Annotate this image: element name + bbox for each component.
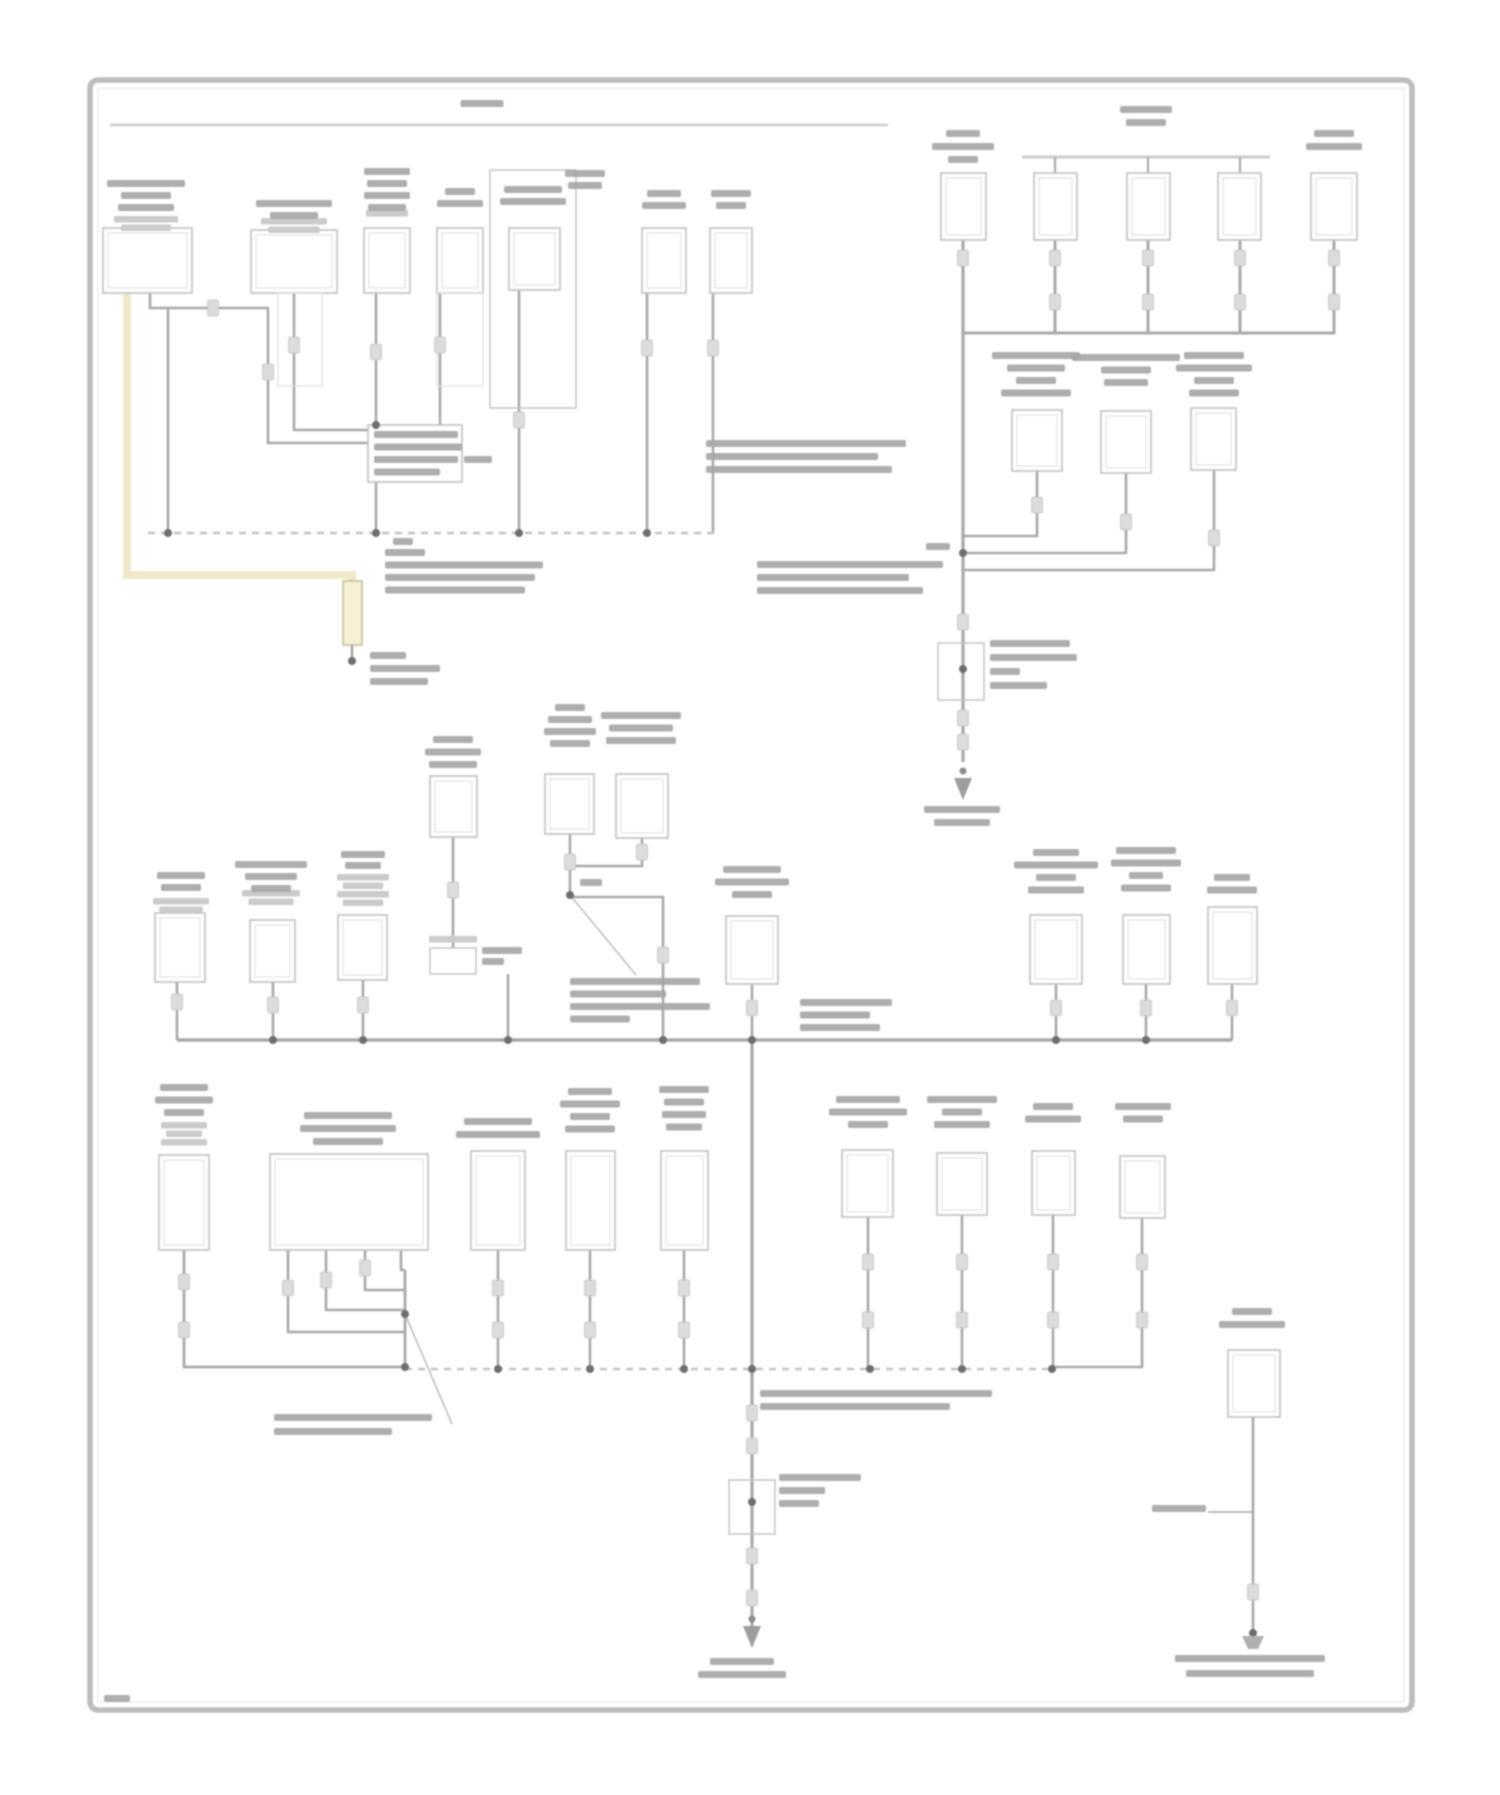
label-smudge-line [385,574,535,581]
component-box [1123,915,1170,984]
label-smudge-line [1184,352,1244,359]
inline-connector-symbol [289,337,300,353]
junction-dot [348,657,356,665]
label-smudge-line [368,204,406,211]
label-smudge-line [364,168,410,175]
inline-connector-symbol [321,1272,332,1288]
label-smudge-line [1121,885,1171,892]
inline-connector-symbol [1235,250,1246,266]
label-smudge-line [706,466,892,473]
junction-dot [680,1365,688,1373]
yellow-highlight-segment [343,581,362,645]
junction-dot [643,529,651,537]
label-smudge-line [942,1109,982,1116]
label-smudge-line [1072,354,1180,361]
label-smudge-line [1007,365,1065,372]
label-smudge-line [946,130,980,137]
label-smudge-line [425,749,481,756]
label-smudge-line [1129,872,1163,879]
inline-connector-symbol [1248,1584,1259,1600]
connector-stack-bar [161,1122,207,1129]
inline-connector-symbol [1209,530,1220,546]
junction-dot [1249,1629,1257,1637]
inline-connector-symbol [957,1254,968,1270]
component-box [1101,411,1151,473]
component-box [1208,907,1257,984]
connector-stack-bar [161,1139,207,1146]
inline-connector-symbol [1137,1312,1148,1328]
connector-stack-bar [159,907,203,914]
label-smudge-line [374,431,458,438]
label-smudge-line [601,712,681,719]
inline-connector-symbol [448,882,459,898]
inline-connector-symbol [565,854,576,870]
junction-dot [494,1365,502,1373]
junction-dot [748,1365,756,1373]
label-smudge-line [711,190,751,197]
label-smudge-line [370,678,428,685]
junction-dot [269,1036,277,1044]
inline-connector-symbol [679,1280,690,1296]
label-smudge-line [1014,862,1098,869]
label-smudge-line [385,562,543,569]
label-smudge-line [698,1671,786,1678]
label-smudge-line [429,761,477,768]
label-smudge-line [482,958,504,965]
label-smudge-line [934,819,990,826]
inline-connector-symbol [637,844,648,860]
label-smudge-line [715,879,789,886]
junction-dot [958,1365,966,1373]
label-smudge-line [304,1112,392,1119]
label-smudge-line [570,978,700,985]
component-box [616,774,668,838]
component-box [1032,1151,1075,1215]
inline-connector-symbol [708,340,719,356]
inline-connector-symbol [1051,1000,1062,1016]
label-smudge-line [504,186,562,193]
label-smudge-line [1176,365,1252,372]
inline-connector-symbol [1048,1254,1059,1270]
junction-dot [748,1036,756,1044]
inline-connector-symbol [208,300,219,316]
label-smudge-line [1214,874,1250,881]
component-box [710,228,752,293]
label-smudge-line [800,1024,880,1031]
inline-connector-symbol [1235,294,1246,310]
label-smudge-line [456,1131,540,1138]
label-smudge-line [990,682,1047,689]
inline-connector-symbol [747,1548,758,1564]
label-smudge-line [118,204,174,211]
label-smudge-line [256,200,332,207]
label-smudge-line [1314,130,1354,137]
inline-connector-symbol [957,1312,968,1328]
label-smudge-line [160,1084,208,1091]
component-box [437,228,483,293]
label-smudge-line [300,1125,396,1132]
component-box [545,774,594,834]
inline-connector-symbol [958,710,969,726]
connector-stack-bar [121,225,171,232]
inline-connector-symbol [1048,1312,1059,1328]
component-box [1012,410,1062,471]
label-smudge-line [568,182,602,189]
component-box [159,1155,209,1250]
component-box [103,228,192,293]
inline-connector-symbol [1141,1000,1152,1016]
label-smudge-line [433,736,473,743]
label-smudge-line [464,456,492,463]
label-smudge-line [1116,847,1176,854]
label-smudge-line [609,725,673,732]
junction-dot [372,421,380,429]
inline-connector-symbol [658,947,669,963]
junction-dot [1142,1036,1150,1044]
label-smudge-line [666,1124,702,1131]
junction-dot [586,1365,594,1373]
inline-connector-symbol [435,337,446,353]
label-smudge-line [437,200,483,207]
component-box [1218,173,1261,240]
label-smudge-line [732,891,772,898]
label-smudge-line [235,861,307,868]
label-smudge-line [461,100,504,107]
component-box [1228,1350,1280,1417]
label-smudge-line [924,806,1000,813]
label-smudge-line [1120,106,1172,113]
junction-dot [959,549,967,557]
label-smudge-line [1028,887,1084,894]
label-smudge-line [104,1695,130,1702]
label-smudge-line [800,999,892,1006]
label-smudge-line [107,180,185,187]
label-smudge-line [251,885,291,892]
component-box [270,1154,428,1250]
inline-connector-symbol [179,1322,190,1338]
inline-connector-symbol [172,994,183,1010]
label-smudge-line [367,180,407,187]
label-smudge-line [757,561,943,568]
inline-connector-symbol [179,1274,190,1290]
label-smudge-line [1001,390,1071,397]
component-box [250,920,295,982]
label-smudge-line [565,1126,615,1133]
junction-dot [1048,1365,1056,1373]
label-smudge-line [990,654,1077,661]
component-box [364,228,410,293]
connector-stack-bar [166,1131,202,1138]
label-smudge-line [757,574,909,581]
label-smudge-line [270,212,318,219]
label-smudge-line [570,1003,710,1010]
label-smudge-line [274,1414,432,1421]
component-box [509,228,560,290]
inline-connector-symbol [1329,294,1340,310]
label-smudge-line [662,1111,706,1118]
label-smudge-line [1025,1116,1081,1123]
ground-symbol-dot [749,1616,756,1623]
label-smudge-line [1033,849,1079,856]
component-box [937,1153,987,1215]
inline-connector-symbol [958,734,969,750]
component-box [1030,915,1082,984]
label-smudge-line [313,1138,383,1145]
junction-dot [372,529,380,537]
component-box [155,913,205,982]
inline-connector-symbol [642,340,653,356]
label-smudge-line [155,1097,213,1104]
component-box [1120,1156,1165,1218]
inline-connector-symbol [283,1280,294,1296]
scanned-wiring-diagram-page [0,0,1500,1795]
label-smudge-line [370,652,406,659]
inline-connector-symbol [747,1000,758,1016]
label-smudge-line [1033,1103,1073,1110]
label-smudge-line [606,737,676,744]
connector-stack-bar [114,216,178,223]
ground-symbol-dot [960,768,967,775]
label-smudge-line [393,538,413,545]
label-smudge-line [779,1500,819,1507]
label-smudge-line [1036,874,1076,881]
label-smudge-line [565,170,605,177]
inline-connector-symbol [863,1254,874,1270]
component-box [941,173,986,240]
inline-connector-symbol [1050,294,1061,310]
inline-connector-symbol [958,614,969,630]
component-box [1311,173,1357,240]
connector-stack-bar [343,900,384,907]
junction-dot [515,529,523,537]
inline-connector-symbol [358,997,369,1013]
label-smudge-line [1207,887,1257,894]
label-smudge-line [580,879,602,886]
label-smudge-line [1111,860,1181,867]
label-smudge-line [932,143,994,150]
junction-dot [401,1363,409,1371]
label-smudge-line [1306,143,1362,150]
label-smudge-line [1126,119,1166,126]
label-smudge-line [560,1101,620,1108]
label-smudge-line [445,188,475,195]
wiring-diagram-svg [0,0,1500,1795]
label-smudge-line [570,1113,610,1120]
inline-connector-symbol [1032,497,1043,513]
label-smudge-line [500,198,566,205]
label-smudge-line [345,862,381,869]
inline-connector-symbol [585,1280,596,1296]
label-smudge-line [548,716,592,723]
inline-connector-symbol [1137,1254,1148,1270]
label-smudge-line [706,453,878,460]
connector-stack-bar [343,883,384,890]
label-smudge-line [757,587,923,594]
label-smudge-line [374,469,440,476]
component-box [1127,173,1170,240]
junction-dot [164,529,172,537]
label-smudge-line [926,543,950,550]
component-box [251,230,337,293]
label-smudge-line [464,1118,532,1125]
label-smudge-line [659,1086,709,1093]
label-smudge-line [1101,367,1151,374]
junction-dot [866,1365,874,1373]
label-smudge-line [544,728,596,735]
label-smudge-line [706,440,906,447]
inline-connector-symbol [747,1438,758,1454]
inline-connector-symbol [863,1312,874,1328]
component-box [338,915,387,980]
label-smudge-line [370,665,440,672]
inline-connector-symbol [514,412,525,428]
label-smudge-line [1123,1116,1163,1123]
junction-dot [566,891,574,899]
label-smudge-line [710,1658,774,1665]
label-smudge-line [121,192,171,199]
label-smudge-line [760,1390,992,1397]
inline-connector-symbol [493,1280,504,1296]
label-smudge-line [934,1121,990,1128]
label-smudge-line [385,587,525,594]
inline-connector-symbol [1050,250,1061,266]
junction-dot [359,1036,367,1044]
label-smudge-line [723,866,781,873]
label-smudge-line [157,872,205,879]
component-box [661,1151,708,1250]
connector-stack-bar [248,899,293,906]
label-smudge-line [992,352,1080,359]
connector-stack-bar [337,891,389,898]
inline-connector-symbol [747,1405,758,1421]
component-box [1191,408,1236,470]
label-smudge-line [1219,1321,1285,1328]
label-smudge-line [927,1096,997,1103]
junction-dot [504,1036,512,1044]
inline-connector-symbol [263,364,274,380]
label-smudge-line [385,549,425,556]
junction-dot [748,1498,756,1506]
label-smudge-line [990,640,1070,647]
label-smudge-line [760,1403,950,1410]
label-smudge-line [642,202,686,209]
label-smudge-line [374,456,458,463]
label-smudge-line [245,873,297,880]
inline-connector-symbol [360,1260,371,1276]
inline-connector-symbol [1143,250,1154,266]
component-box [471,1151,525,1250]
label-smudge-line [1115,1103,1171,1110]
label-smudge-line [1194,377,1234,384]
label-smudge-line [555,704,585,711]
label-smudge-line [364,192,410,199]
label-smudge-line [800,1012,870,1019]
inline-connector-symbol [1329,250,1340,266]
component-box [430,776,477,837]
label-smudge-line [1189,390,1239,397]
label-smudge-line [779,1474,861,1481]
connector-stack-bar [429,936,477,943]
junction-dot [959,665,967,673]
label-smudge-line [829,1109,907,1116]
connector-stack-bar [337,874,389,881]
component-box [1034,173,1077,240]
label-smudge-line [1152,1505,1206,1512]
junction-dot [1052,1036,1060,1044]
component-box [566,1151,615,1250]
label-smudge-line [164,1109,204,1116]
label-smudge-line [568,1088,612,1095]
label-smudge-line [664,1099,704,1106]
label-smudge-line [1186,1670,1314,1677]
inline-connector-symbol [1143,294,1154,310]
junction-dot [659,1036,667,1044]
label-smudge-line [647,190,681,197]
inline-connector-symbol [1121,514,1132,530]
inline-connector-symbol [747,1590,758,1606]
inline-connector-symbol [371,344,382,360]
label-smudge-line [1175,1655,1325,1662]
connector-stack-bar [153,898,209,905]
inline-connector-symbol [268,997,279,1013]
label-smudge-line [836,1096,900,1103]
label-smudge-line [341,851,385,858]
label-smudge-line [1104,379,1148,386]
inline-connector-symbol [679,1322,690,1338]
component-box [726,916,778,984]
label-smudge-line [482,947,522,954]
label-smudge-line [570,991,666,998]
inline-connector-symbol [958,250,969,266]
component-box [842,1150,893,1217]
label-smudge-line [274,1428,392,1435]
inline-connector-symbol [585,1322,596,1338]
inline-connector-symbol [493,1322,504,1338]
label-smudge-line [948,156,978,163]
label-smudge-line [779,1487,825,1494]
label-smudge-line [1016,377,1056,384]
label-smudge-line [374,444,462,451]
inline-connector-symbol [1227,1000,1238,1016]
junction-dot [401,1310,409,1318]
label-smudge-line [161,884,201,891]
component-box [642,228,686,293]
label-smudge-line [716,202,746,209]
connector-stack-bar [268,227,319,234]
label-smudge-line [990,668,1020,675]
label-smudge-line [550,740,590,747]
label-smudge-line [1232,1308,1272,1315]
label-smudge-line [848,1121,888,1128]
label-smudge-line [570,1016,630,1023]
